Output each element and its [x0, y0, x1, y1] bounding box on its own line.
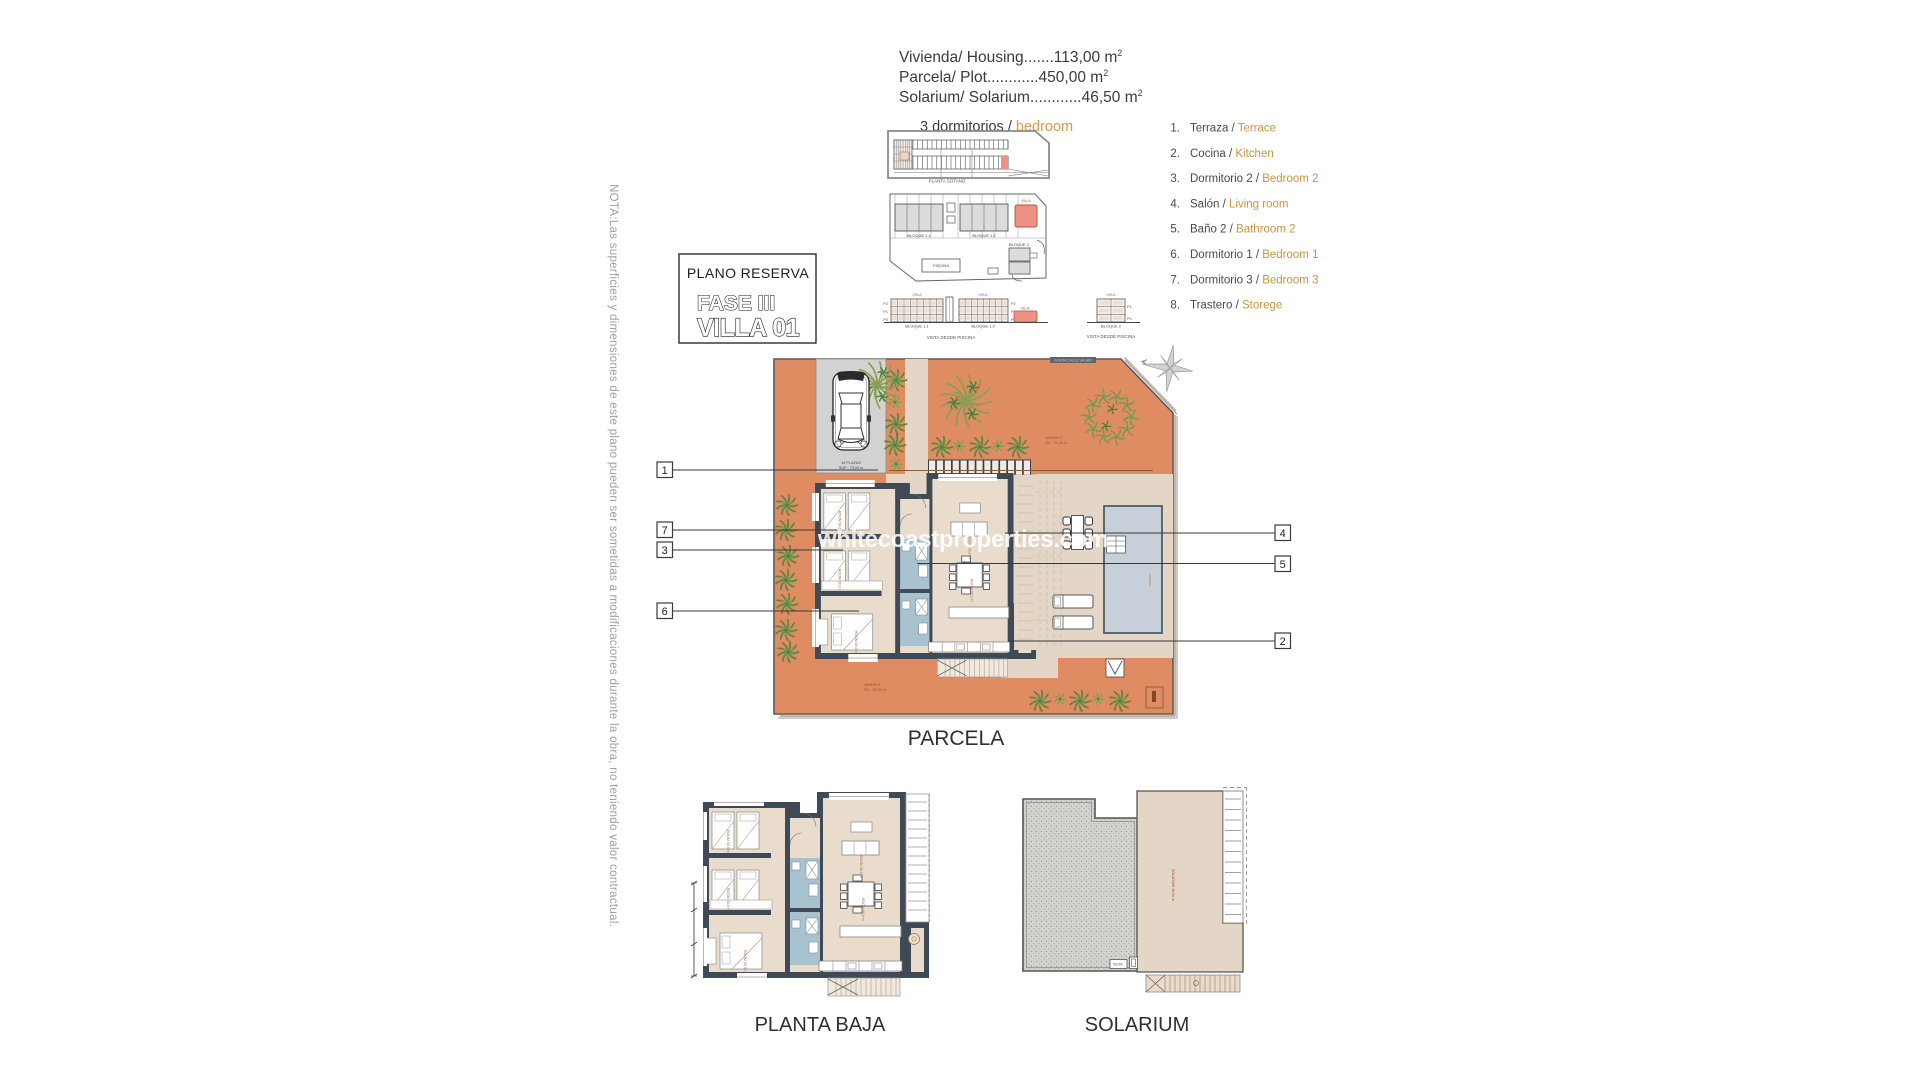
svg-text:P2: P2 [883, 302, 888, 306]
svg-text:P1: P1 [883, 310, 888, 314]
svg-text:Parcela/ Plot............450,0: Parcela/ Plot............450,00 m2 [899, 68, 1108, 86]
svg-text:VISTA DESDE PISCINA: VISTA DESDE PISCINA [1087, 334, 1135, 339]
svg-text:BLOQUE 1.1: BLOQUE 1.1 [907, 233, 931, 238]
svg-text:16 PLAZAS: 16 PLAZAS [841, 461, 861, 465]
svg-text:VILLA: VILLA [1021, 307, 1031, 311]
svg-text:ACERA CALLE SALARI: ACERA CALLE SALARI [1054, 359, 1091, 363]
svg-text:2.: 2. [1170, 148, 1180, 160]
svg-text:PLANTA BAJA: PLANTA BAJA [755, 1014, 886, 1036]
svg-text:VILLA: VILLA [1021, 199, 1031, 203]
svg-text:GRUA: GRUA [978, 293, 988, 297]
svg-text:4: 4 [1280, 528, 1286, 540]
svg-text:SU : 92,00 m: SU : 92,00 m [864, 688, 886, 692]
svg-text:P0: P0 [883, 318, 888, 322]
svg-text:PISCINA: PISCINA [1148, 574, 1152, 586]
svg-text:Dormitorio 1 / Bedroom 1: Dormitorio 1 / Bedroom 1 [1190, 249, 1318, 261]
svg-text:FASE III: FASE III [697, 292, 775, 315]
svg-text:1: 1 [662, 465, 668, 477]
svg-text:VILLA 01: VILLA 01 [697, 314, 800, 342]
svg-text:Vivienda/ Housing.......113,00: Vivienda/ Housing.......113,00 m2 [899, 48, 1122, 66]
svg-text:P2: P2 [1011, 302, 1016, 306]
svg-text:VISTA DESDE PISCINA: VISTA DESDE PISCINA [927, 335, 975, 340]
svg-text:BLOQUE 1.2: BLOQUE 1.2 [971, 324, 995, 329]
svg-text:JARDIN 1: JARDIN 1 [864, 683, 881, 687]
svg-text:PISCINA: PISCINA [933, 263, 949, 268]
svg-text:SOLARIUM 46,50 m: SOLARIUM 46,50 m [1171, 869, 1175, 901]
svg-text:SOLARIUM: SOLARIUM [1085, 1014, 1189, 1036]
svg-text:8.: 8. [1170, 300, 1180, 312]
svg-text:Solarium/ Solarium............: Solarium/ Solarium............46,50 m2 [899, 88, 1143, 106]
svg-text:BLOQUE 2: BLOQUE 2 [1101, 324, 1122, 329]
svg-text:BLOQUE 1.2: BLOQUE 1.2 [972, 233, 996, 238]
svg-text:Baño 2 / Bathroom 2: Baño 2 / Bathroom 2 [1190, 224, 1296, 236]
svg-text:BLOQUE 1.1: BLOQUE 1.1 [905, 324, 929, 329]
svg-text:SU : 75,00 m: SU : 75,00 m [1045, 441, 1067, 445]
svg-text:5.: 5. [1170, 224, 1180, 236]
svg-text:PARCELA: PARCELA [908, 727, 1004, 750]
svg-text:6.: 6. [1170, 249, 1180, 261]
svg-text:Dormitorio 2 / Bedroom 2: Dormitorio 2 / Bedroom 2 [1190, 173, 1318, 185]
svg-text:50x50: 50x50 [1113, 963, 1123, 967]
svg-text:7: 7 [662, 525, 668, 537]
svg-text:7.: 7. [1170, 274, 1180, 286]
svg-text:PLANTA SÓTANO: PLANTA SÓTANO [929, 178, 966, 184]
svg-text:SUP : 73,00 m: SUP : 73,00 m [839, 466, 864, 470]
svg-text:JARDIN 2: JARDIN 2 [1045, 436, 1062, 440]
svg-text:GRUA: GRUA [912, 293, 922, 297]
svg-text:PLANO RESERVA: PLANO RESERVA [687, 265, 809, 281]
svg-text:whitecoastproperties.com: whitecoastproperties.com [817, 526, 1108, 553]
svg-text:P1: P1 [1127, 305, 1132, 309]
svg-text:Dormitorio 3 / Bedroom 3: Dormitorio 3 / Bedroom 3 [1190, 274, 1318, 286]
svg-text:Terraza / Terrace: Terraza / Terrace [1190, 123, 1276, 135]
svg-text:3: 3 [662, 545, 668, 557]
svg-text:2: 2 [1280, 636, 1286, 648]
svg-text:BLOQUE 2: BLOQUE 2 [1009, 242, 1030, 247]
svg-text:GRUA: GRUA [1106, 293, 1116, 297]
svg-text:P0: P0 [1127, 317, 1132, 321]
svg-text:Trastero / Storege: Trastero / Storege [1190, 300, 1282, 312]
svg-text:Salón / Living room: Salón / Living room [1190, 198, 1288, 210]
svg-text:Cocina / Kitchen: Cocina / Kitchen [1190, 148, 1274, 160]
svg-text:3.: 3. [1170, 173, 1180, 185]
svg-text:5: 5 [1280, 559, 1286, 571]
svg-text:1.: 1. [1170, 123, 1180, 135]
svg-text:4.: 4. [1170, 198, 1180, 210]
svg-text:NOTA:Las superficies y dimensi: NOTA:Las superficies y dimensiones de es… [607, 184, 619, 927]
svg-text:6: 6 [662, 606, 668, 618]
